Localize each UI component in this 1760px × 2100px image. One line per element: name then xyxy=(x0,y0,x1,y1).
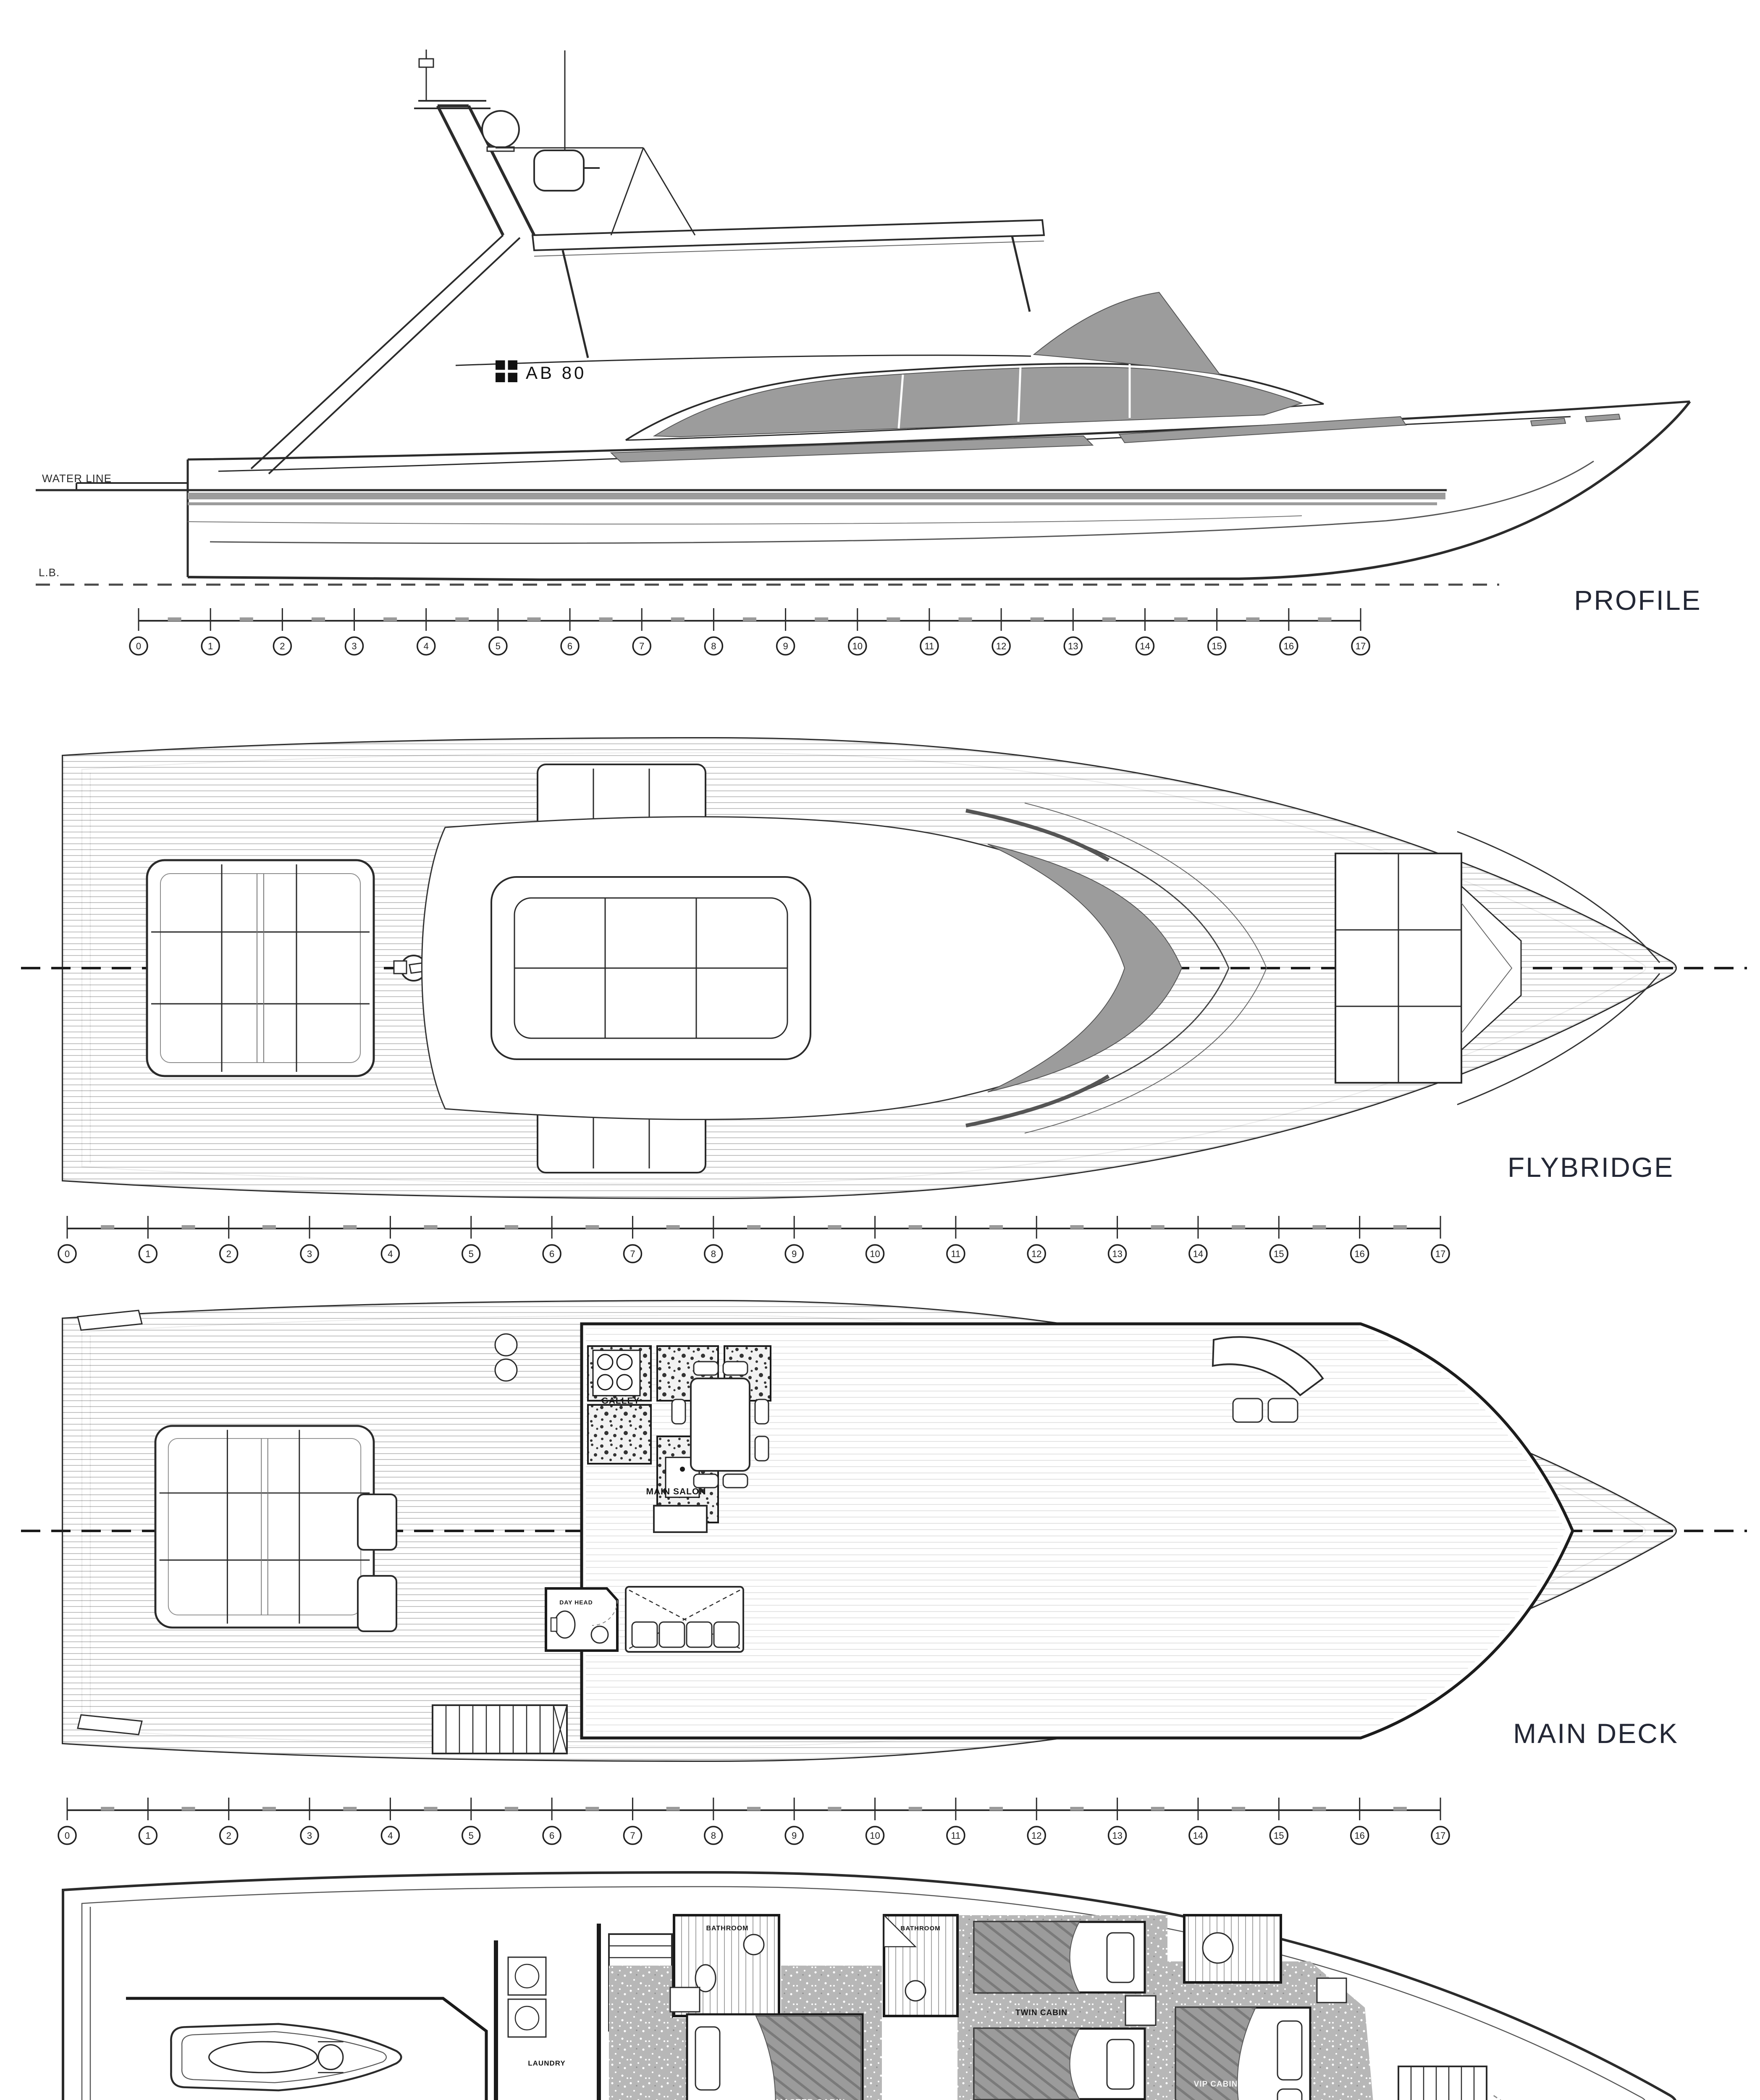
station-number: 12 xyxy=(996,641,1006,651)
sideboard xyxy=(654,1506,707,1532)
vip-bed: VIP CABIN xyxy=(1176,2008,1310,2100)
station-number: 13 xyxy=(1112,1249,1122,1259)
station-number: 15 xyxy=(1274,1830,1284,1841)
hardtop xyxy=(532,220,1044,250)
master-cabin-label: MASTER CABIN xyxy=(776,2098,845,2100)
water-line: WATER LINE xyxy=(36,472,1447,490)
bathroom-label: BATHROOM xyxy=(900,1925,940,1932)
station-number: 11 xyxy=(951,1830,960,1841)
station-number: 9 xyxy=(783,641,788,651)
toilet xyxy=(555,1611,575,1638)
station-number: 16 xyxy=(1284,641,1294,651)
twin-bed xyxy=(974,2029,1145,2099)
station-number: 10 xyxy=(870,1249,880,1259)
model-label: AB 80 xyxy=(526,363,586,383)
station-number: 2 xyxy=(226,1830,231,1841)
station-number: 11 xyxy=(951,1249,960,1259)
master-bed: MASTER CABIN xyxy=(687,2014,863,2100)
dimension-ruler: 01234567891011121314151617 xyxy=(130,608,1369,655)
tender-garage xyxy=(126,1998,486,2100)
salon-sofa xyxy=(626,1587,743,1652)
station-number: 7 xyxy=(639,641,644,651)
vip-dayhead xyxy=(1184,1915,1281,1982)
station-number: 1 xyxy=(208,641,213,651)
station-number: 2 xyxy=(280,641,285,651)
station-number: 3 xyxy=(351,641,357,651)
radar-arch xyxy=(251,50,695,474)
station-number: 17 xyxy=(1435,1830,1445,1841)
blueprint-sheet: { "page": {"width": 4191, "height": 5614… xyxy=(0,0,1760,2100)
flybridge-caption: FLYBRIDGE xyxy=(1508,1152,1674,1183)
station-number: 8 xyxy=(711,1249,716,1259)
station-number: 3 xyxy=(307,1830,312,1841)
station-number: 16 xyxy=(1354,1249,1364,1259)
twin-cabin-label: TWIN CABIN xyxy=(1015,2008,1068,2017)
profile-caption: PROFILE xyxy=(1574,585,1701,616)
station-number: 14 xyxy=(1140,641,1150,651)
flybridge-stairs xyxy=(433,1705,567,1753)
station-number: 11 xyxy=(925,641,934,651)
cockpit-hatch xyxy=(155,1426,374,1627)
station-number: 14 xyxy=(1193,1830,1203,1841)
station-number: 17 xyxy=(1435,1249,1445,1259)
station-number: 6 xyxy=(549,1249,554,1259)
baseline: L.B. xyxy=(36,566,1499,585)
radar-dome xyxy=(482,111,519,148)
flybridge-profile xyxy=(456,220,1220,375)
station-number: 16 xyxy=(1354,1830,1364,1841)
yacht-general-arrangement-drawing: L.B. WATER LINE xyxy=(0,0,1760,2100)
flybridge-view xyxy=(21,735,1747,1201)
lower-deck-view: LAUNDRY BATHROOM MASTER CABIN xyxy=(21,1872,1747,2100)
station-number: 4 xyxy=(424,641,429,651)
day-head-label: DAY HEAD xyxy=(559,1599,593,1606)
brand-mark: AB 80 xyxy=(496,360,586,383)
station-number: 4 xyxy=(388,1249,393,1259)
arch-stays xyxy=(251,235,520,474)
bow-port-lights xyxy=(1531,414,1620,426)
nightstand xyxy=(670,1987,700,2012)
station-number: 6 xyxy=(567,641,572,651)
station-number: 7 xyxy=(630,1249,635,1259)
station-number: 12 xyxy=(1031,1249,1041,1259)
deckhouse-profile xyxy=(611,364,1620,462)
pillow xyxy=(695,2027,720,2090)
station-number: 8 xyxy=(711,641,716,651)
pillow xyxy=(1107,1933,1134,1982)
pillow xyxy=(1277,2089,1302,2100)
aft-sunpad-hatch xyxy=(147,860,374,1076)
station-number: 5 xyxy=(496,641,501,651)
main-deck-view: GALLEY MAIN SALON xyxy=(21,1298,1747,1764)
station-number: 2 xyxy=(226,1249,231,1259)
station-number: 13 xyxy=(1112,1830,1122,1841)
bathroom-label: BATHROOM xyxy=(706,1925,748,1932)
main-deck-caption: MAIN DECK xyxy=(1513,1718,1679,1749)
station-number: 7 xyxy=(630,1830,635,1841)
station-number: 5 xyxy=(469,1830,474,1841)
pillow xyxy=(1107,2040,1134,2089)
baseline-label: L.B. xyxy=(39,566,60,579)
profile-view: L.B. WATER LINE xyxy=(36,50,1702,655)
station-number: 8 xyxy=(711,1830,716,1841)
day-head: DAY HEAD xyxy=(546,1588,617,1651)
station-number: 13 xyxy=(1068,641,1078,651)
basin xyxy=(744,1935,764,1955)
satcom-dome xyxy=(534,150,584,191)
nightstand xyxy=(1125,1996,1156,2025)
station-number: 14 xyxy=(1193,1249,1203,1259)
station-number: 9 xyxy=(792,1830,797,1841)
station-number: 0 xyxy=(65,1249,70,1259)
pillow xyxy=(1277,2021,1302,2080)
dimension-ruler: 01234567891011121314151617 xyxy=(58,1798,1449,1844)
station-number: 15 xyxy=(1274,1249,1284,1259)
station-number: 10 xyxy=(870,1830,880,1841)
basin xyxy=(1203,1933,1233,1963)
laundry-label: LAUNDRY xyxy=(528,2059,565,2067)
twin-bathroom: BATHROOM xyxy=(884,1915,957,2016)
basin xyxy=(591,1626,608,1643)
station-number: 9 xyxy=(792,1249,797,1259)
flybridge-windshield xyxy=(1034,292,1220,375)
main-salon-label: MAIN SALON xyxy=(646,1487,706,1496)
galley-label: GALLEY xyxy=(601,1396,640,1406)
station-number: 4 xyxy=(388,1830,393,1841)
station-number: 10 xyxy=(852,641,863,651)
dimension-ruler: 01234567891011121314151617 xyxy=(58,1216,1449,1263)
station-number: 1 xyxy=(145,1830,150,1841)
vip-cabin-label: VIP CABIN xyxy=(1194,2080,1238,2089)
station-number: 0 xyxy=(136,641,141,651)
boot-stripe xyxy=(188,493,1445,505)
toilet xyxy=(905,1981,926,2001)
nightstand xyxy=(1317,1978,1346,2003)
station-number: 5 xyxy=(469,1249,474,1259)
station-number: 3 xyxy=(307,1249,312,1259)
twin-bed xyxy=(974,1922,1145,1992)
station-number: 0 xyxy=(65,1830,70,1841)
station-number: 12 xyxy=(1031,1830,1041,1841)
station-number: 1 xyxy=(145,1249,150,1259)
station-number: 15 xyxy=(1212,641,1222,651)
station-number: 17 xyxy=(1356,641,1366,651)
station-number: 6 xyxy=(549,1830,554,1841)
